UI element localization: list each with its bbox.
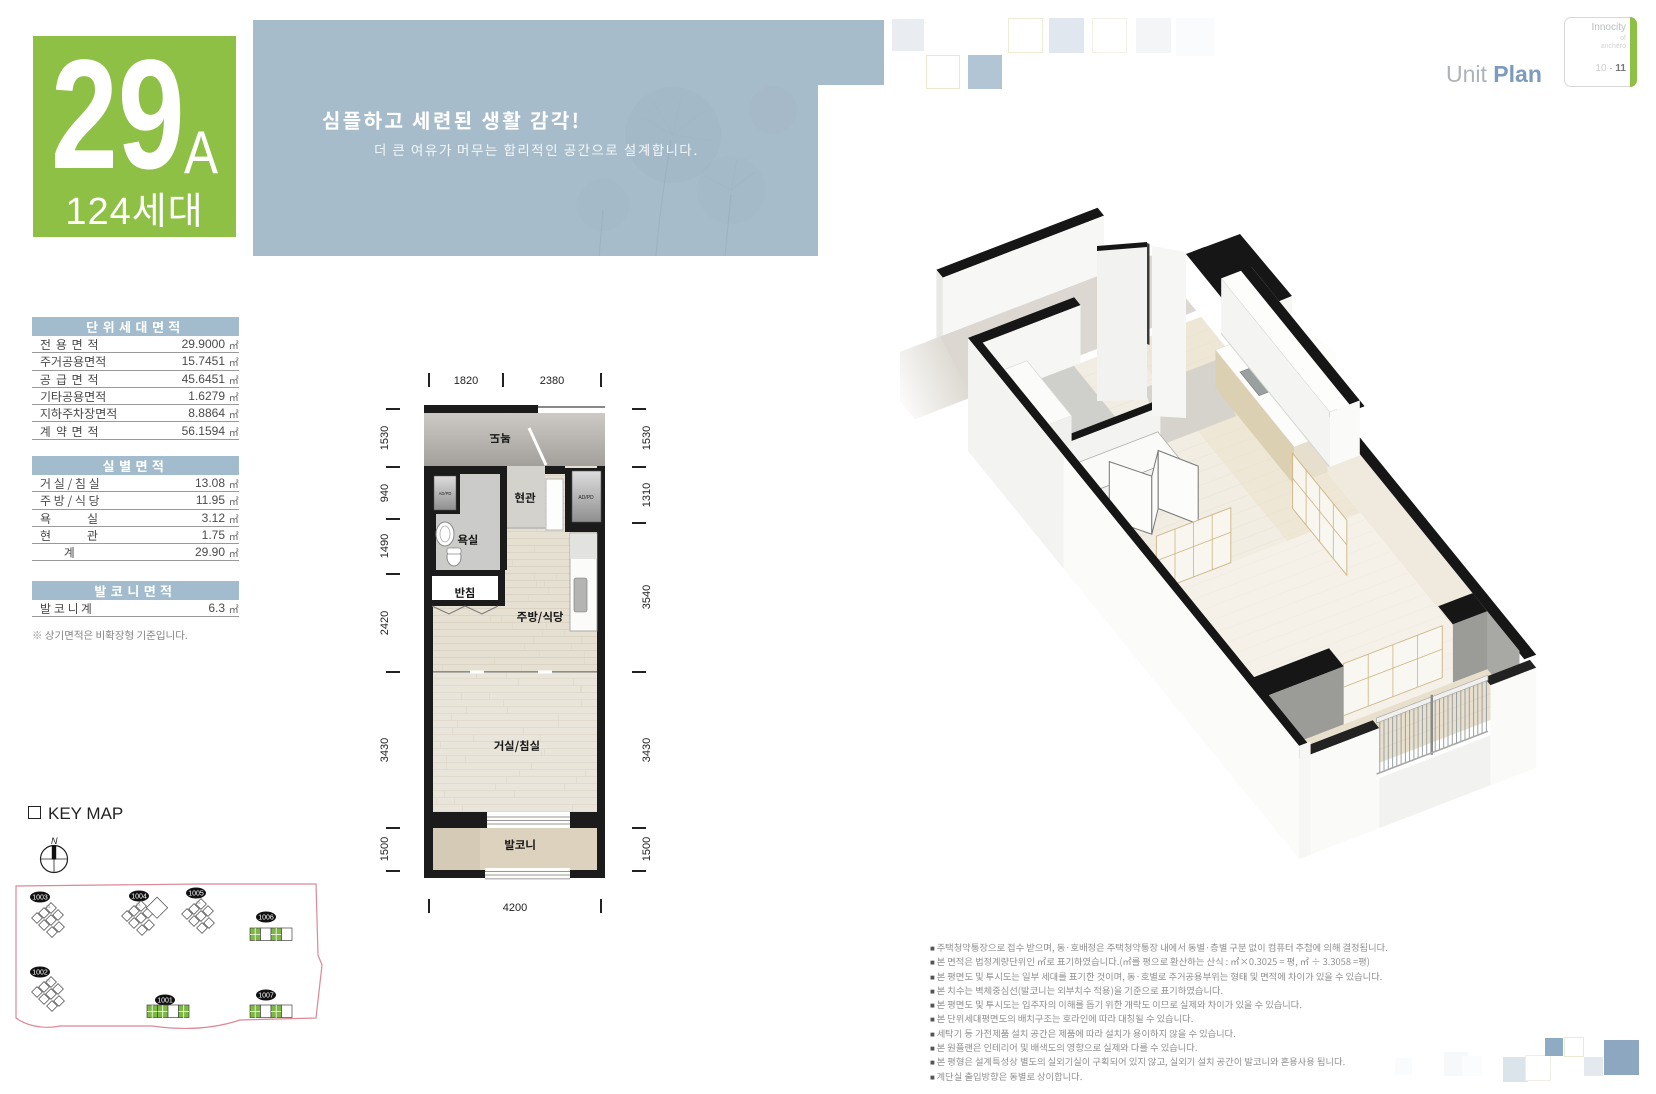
svg-text:복도: 복도 bbox=[489, 430, 511, 446]
svg-text:현관: 현관 bbox=[514, 490, 536, 506]
svg-text:1490: 1490 bbox=[379, 534, 391, 558]
svg-text:3540: 3540 bbox=[641, 585, 653, 609]
svg-text:AD/PD: AD/PD bbox=[439, 491, 452, 496]
svg-text:3430: 3430 bbox=[641, 738, 653, 762]
svg-text:25: 25 bbox=[46, 904, 51, 910]
svg-text:욕실: 욕실 bbox=[457, 532, 478, 548]
svg-text:AD/PD: AD/PD bbox=[578, 495, 594, 501]
svg-text:1001: 1001 bbox=[157, 998, 173, 1005]
svg-text:1002: 1002 bbox=[32, 970, 48, 977]
svg-text:25: 25 bbox=[196, 900, 201, 906]
svg-text:2380: 2380 bbox=[540, 375, 564, 387]
svg-text:1003: 1003 bbox=[32, 895, 48, 902]
svg-text:반침: 반침 bbox=[454, 585, 475, 601]
svg-text:1820: 1820 bbox=[454, 375, 478, 387]
svg-text:1530: 1530 bbox=[379, 426, 391, 450]
svg-text:1006: 1006 bbox=[258, 915, 274, 922]
svg-text:25: 25 bbox=[136, 902, 141, 908]
svg-text:거실/침실: 거실/침실 bbox=[494, 738, 541, 754]
svg-text:발코니: 발코니 bbox=[504, 837, 536, 853]
svg-text:2420: 2420 bbox=[379, 611, 391, 635]
svg-text:1005: 1005 bbox=[188, 891, 204, 898]
svg-text:25: 25 bbox=[46, 978, 51, 984]
svg-text:1007: 1007 bbox=[258, 993, 274, 1000]
svg-text:3430: 3430 bbox=[379, 738, 391, 762]
svg-text:1310: 1310 bbox=[641, 483, 653, 507]
svg-text:1530: 1530 bbox=[641, 426, 653, 450]
svg-text:1004: 1004 bbox=[131, 894, 147, 901]
svg-text:주방/식당: 주방/식당 bbox=[517, 609, 564, 625]
svg-text:940: 940 bbox=[379, 484, 391, 502]
svg-text:1500: 1500 bbox=[379, 837, 391, 861]
svg-text:1500: 1500 bbox=[641, 837, 653, 861]
svg-text:4200: 4200 bbox=[503, 902, 527, 914]
svg-text:N: N bbox=[51, 836, 58, 846]
